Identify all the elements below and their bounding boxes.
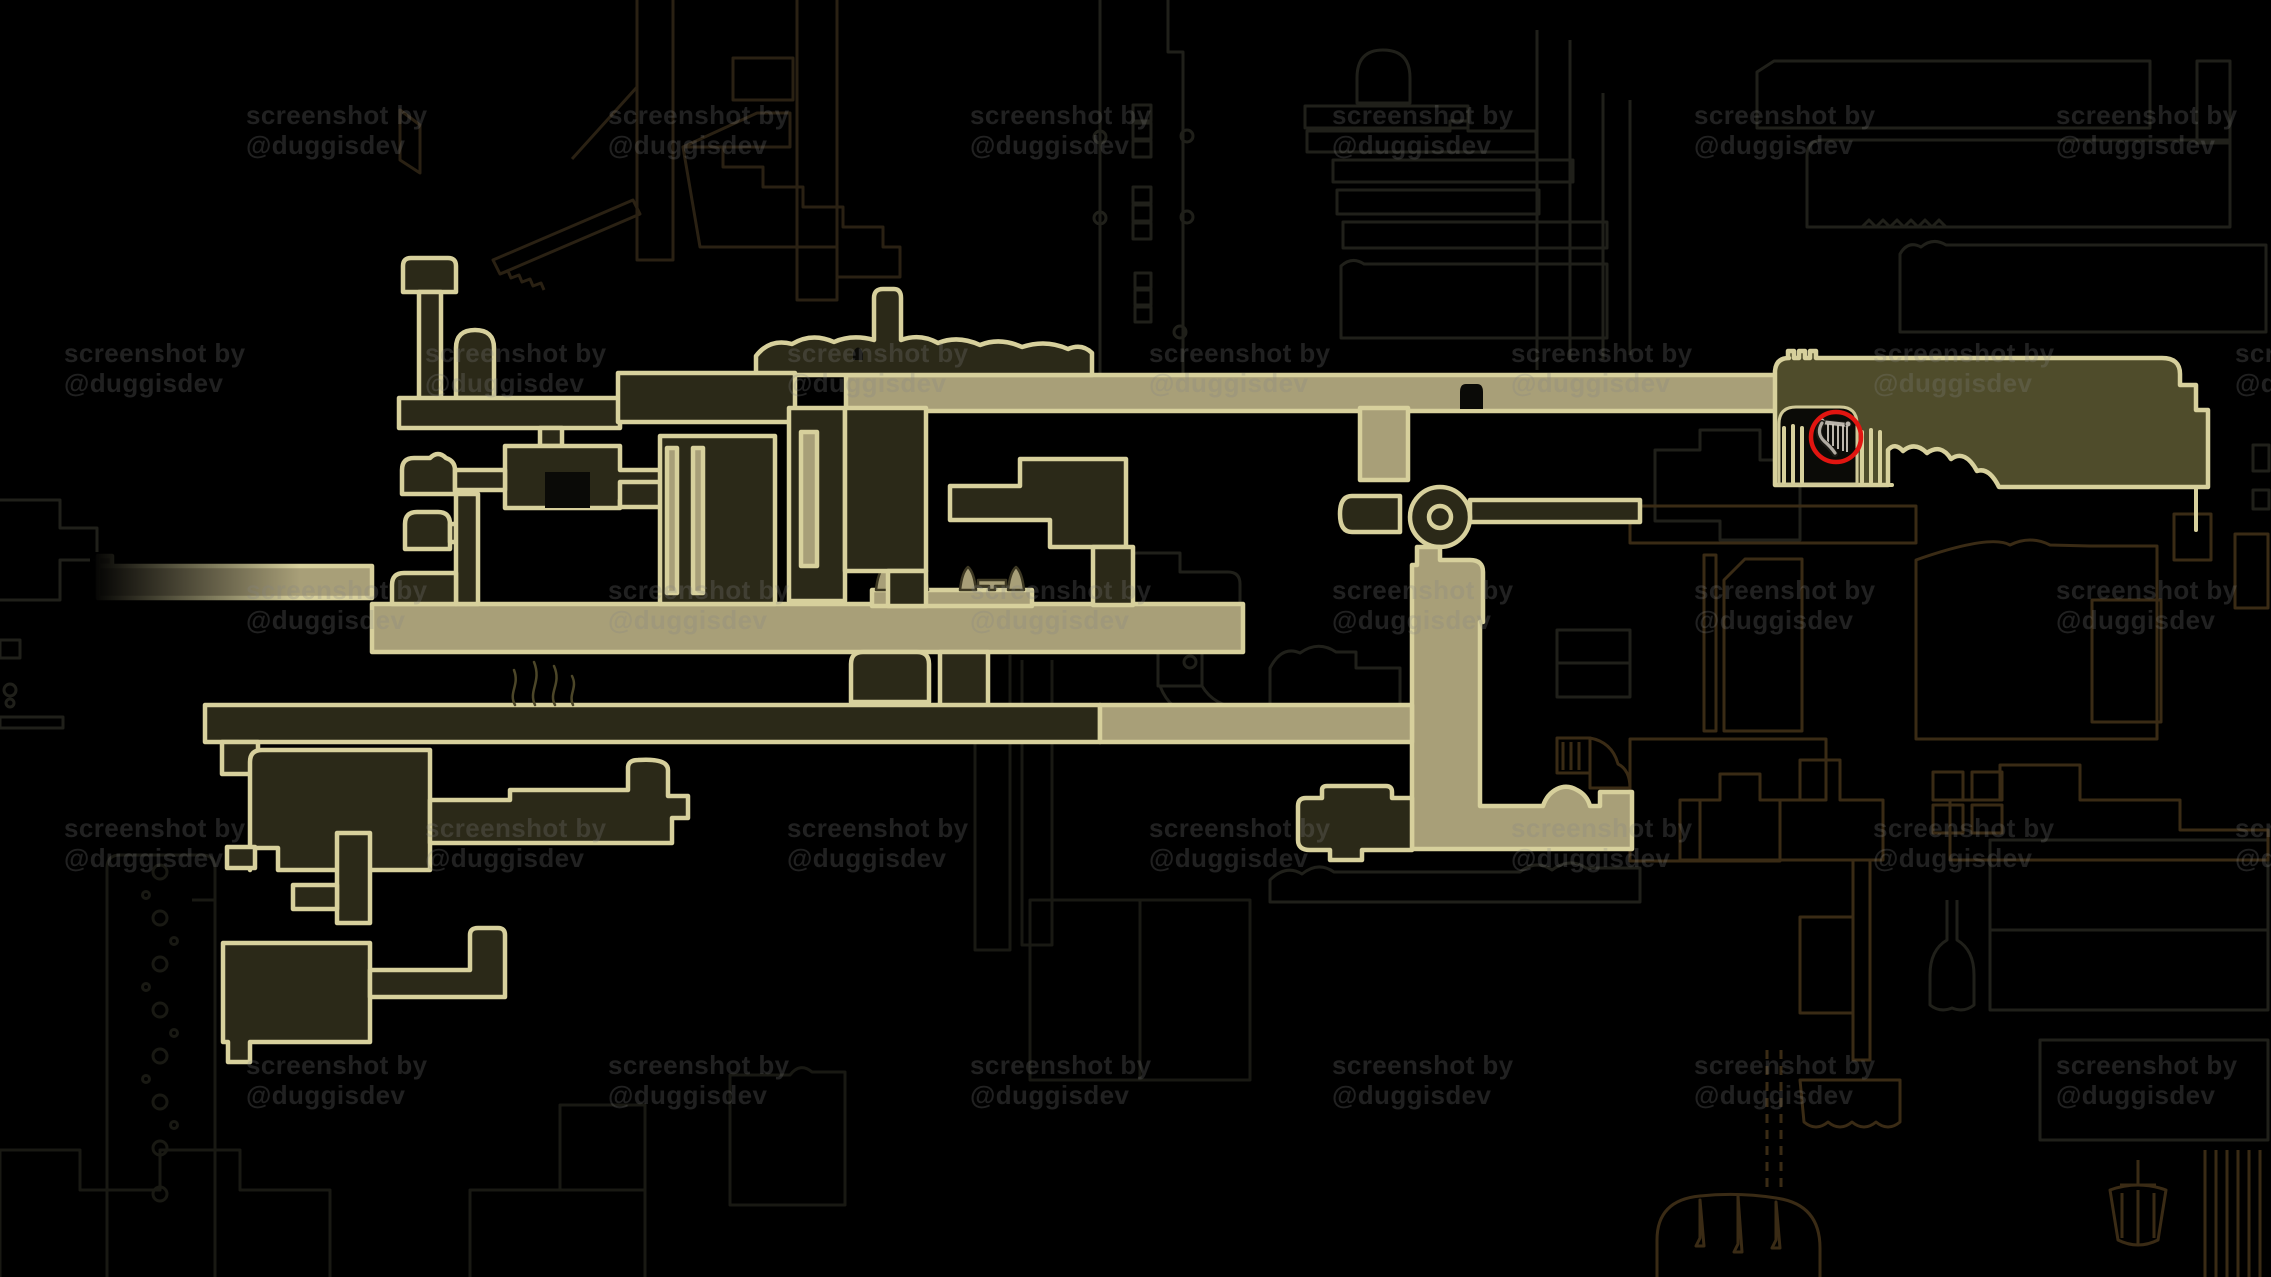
connector-p2 [540,428,562,446]
bl-arm [227,847,255,868]
upper-corridor [399,398,620,428]
flame-icon [513,670,516,705]
t-tower-stem [419,292,441,400]
wheel-icon [1410,487,1470,547]
riser-r5 [1093,547,1133,605]
spike-icon [960,567,976,590]
bottom-mid-block [1030,900,1250,1080]
hall-pillar [693,448,703,593]
funnel [1930,900,1974,1010]
corridor-fade [90,552,300,608]
stacked-halls [1305,30,1630,370]
flame-icons [513,662,574,705]
bl-right-ext [370,928,505,997]
left-tower [0,855,330,1277]
bl-shaft [337,833,370,923]
flame-icon [533,662,537,705]
right-hall [1990,840,2268,1010]
under-room [851,652,929,702]
tombstone-pillar [456,330,494,398]
chandelier-icon [2110,1160,2166,1245]
room-r3 [405,512,450,549]
room-r1 [402,454,455,494]
wheel-neck [1360,408,1408,480]
vertical-v2 [456,494,478,604]
bottom-right-brown [1657,760,2268,1277]
tall-room-exit [888,571,926,606]
hanging-ropes [1767,1050,1781,1190]
upper-corridor-right [618,373,795,422]
bl-corridor [430,760,688,843]
room-r5 [950,459,1126,547]
room-r2-notch [545,472,590,508]
bl-big-room [223,943,370,1062]
shaft-left-room [1298,786,1412,860]
surface-hills [756,289,1092,375]
corridor-mid [372,604,1243,652]
riser [940,652,988,707]
game-map-screenshot: screenshot by@duggisdevscreenshot by@dug… [0,0,2271,1277]
two-bump-room [1270,646,1400,712]
explored-rooms [98,258,2208,1062]
wheel-right-corridor [1470,500,1640,522]
room-pillar [801,432,817,566]
corridor-low-right [1100,705,1412,742]
dome-outline [1357,50,1410,103]
connector-r1 [455,470,505,490]
corridor-low-left [205,705,1100,742]
bumpy-band [1270,863,1640,902]
t-tower-bar [403,258,456,292]
room-r4 [392,573,456,604]
map-canvas [0,0,2271,1277]
saw-teeth [500,271,544,290]
corridor-top [846,375,1790,411]
wheel-left-stub [1340,496,1400,532]
top-left-ruins [400,0,900,300]
spike-icon [1008,567,1024,590]
elevator-boxes [1094,105,1193,338]
right-hall-2 [2040,1040,2268,1140]
tall-room [845,408,926,571]
flame-icon [572,676,574,705]
left-edge-rooms [0,500,97,728]
bl-nub [293,885,337,909]
hall-pillar [667,448,677,593]
bottom-block-bump [730,1068,845,1205]
room-right-of-shaft [1557,630,1630,697]
bottom-steps [470,1105,645,1277]
tower-outline [1100,0,1183,383]
flame-icon [553,666,557,705]
brown-window [1557,738,1630,788]
sawtooth-edge [1862,220,1946,227]
doorway-arch-icon [1460,384,1483,409]
